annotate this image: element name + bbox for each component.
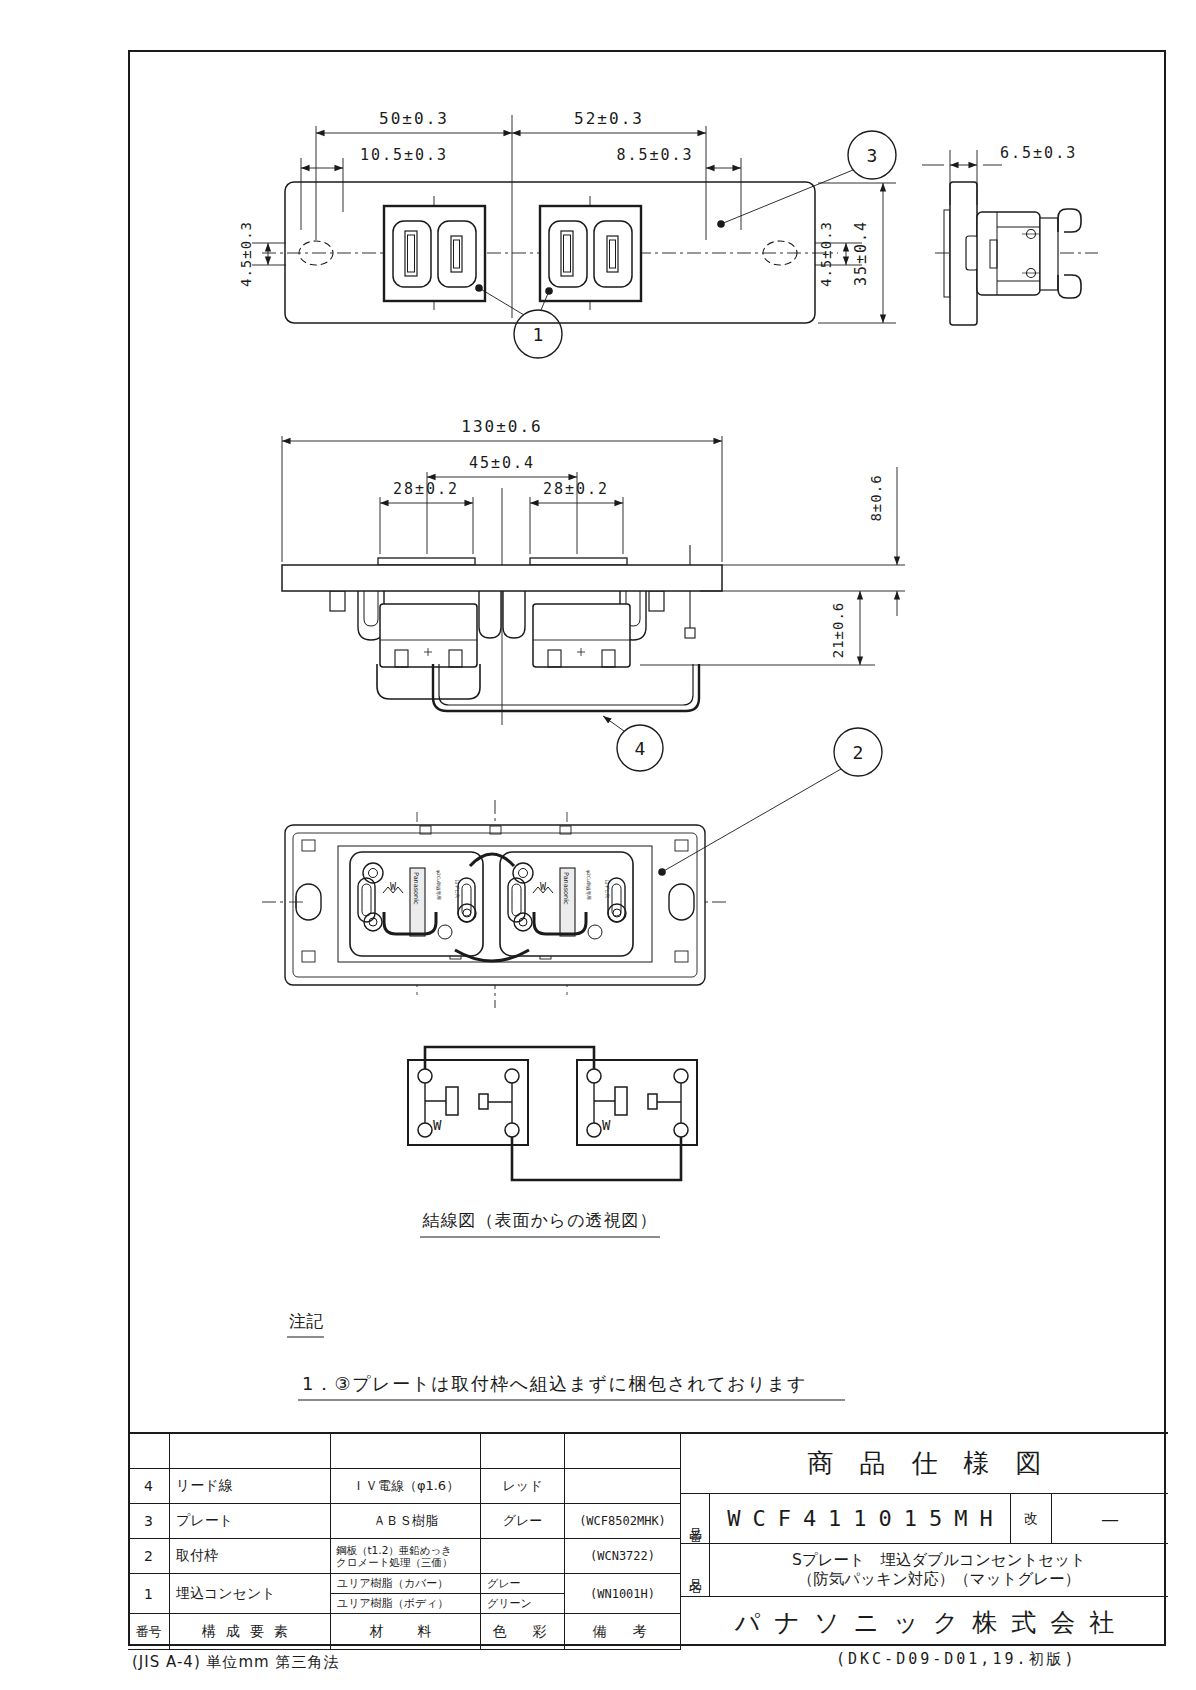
dim-10-5: 10.5±0.3 [360, 146, 448, 164]
wiring-diagram [408, 1047, 697, 1180]
bom-row2-component: 取付枠 [170, 1539, 331, 1574]
callout-2-label: 2 [853, 742, 864, 763]
bom-row1-no: 1 [128, 1574, 170, 1614]
bom-row1-color: グレー グリーン [481, 1574, 565, 1614]
bom-row2-no: 2 [128, 1539, 170, 1574]
bom-row4-color: レッド [481, 1469, 565, 1504]
bom-row3-remarks: (WCF8502MHK) [565, 1504, 681, 1539]
brand-text-left: Panasonic [412, 872, 420, 905]
notes-heading: 注記 [289, 1311, 323, 1331]
footer-standard-note: (JIS A-4) 単位mm 第三角法 [132, 1653, 340, 1672]
bom-row1-remarks: (WN1001H) [565, 1574, 681, 1614]
dim-28-right: 28±0.2 [543, 480, 609, 498]
bom-header-remarks: 備 考 [565, 1614, 681, 1650]
bom-header-color: 色 彩 [481, 1614, 565, 1650]
bom-table: 4 リード線 ＩＶ電線（φ1.6） レッド 3 プレート ＡＢＳ樹脂 グレー (… [128, 1432, 681, 1648]
back-view [262, 800, 728, 1008]
bom-row2-material: 鋼板（t1.2）亜鉛めっき クロメート処理（三価） [331, 1539, 481, 1574]
sheet-title: 商品仕様図 [681, 1434, 1168, 1494]
bom-row2-remarks: (WCN3722) [565, 1539, 681, 1574]
wiring-w-label-right: W [602, 1117, 611, 1133]
wiring-caption: 結線図（表面からの透視図） [421, 1210, 657, 1230]
product-name-label: 品名 [681, 1544, 710, 1596]
callout-4 [603, 716, 663, 771]
bom-header-component: 構成要素 [170, 1614, 331, 1650]
bom-row2-color [481, 1539, 565, 1574]
micro-text-gauge-right: φ2Cu単線専用 [586, 870, 592, 900]
dim-28-left: 28±0.2 [393, 480, 459, 498]
bom-row4-component: リード線 [170, 1469, 331, 1504]
title-block: 商品仕様図 品番 WCF411015MH 改 — 品名 Sプレート 埋込ダブルコ… [681, 1432, 1168, 1648]
dim-21: 21±0.6 [830, 602, 846, 659]
brand-text-right: Panasonic [562, 872, 570, 905]
dim-8: 8±0.6 [868, 474, 884, 521]
dim-35: 35±0.4 [852, 220, 870, 286]
product-name-value: Sプレート 埋込ダブルコンセントセット （防気パッキン対応）（マットグレー） [710, 1544, 1168, 1596]
part-number-value: WCF411015MH [710, 1494, 1010, 1543]
footer-doc-code: (DKC-D09-D01,19.初版) [836, 1650, 1077, 1669]
bom-row4-no: 4 [128, 1469, 170, 1504]
bom-row3-component: プレート [170, 1504, 331, 1539]
bom-row4-material: ＩＶ電線（φ1.6） [331, 1469, 481, 1504]
w-mark-left: W [390, 881, 397, 892]
callout-1-label: 1 [533, 324, 544, 345]
callout-3-label: 3 [867, 145, 878, 166]
side-view [922, 150, 1098, 325]
bom-row3-no: 3 [128, 1504, 170, 1539]
dim-6-5: 6.5±0.3 [1000, 144, 1077, 162]
spec-drawing-page: 50±0.3 52±0.3 10.5±0.3 8.5±0.3 4.5±0.3 4… [0, 0, 1196, 1690]
bom-header-no: 番号 [128, 1614, 170, 1650]
bom-row1-component: 埋込コンセント [170, 1574, 331, 1614]
bom-row3-color: グレー [481, 1504, 565, 1539]
callout-4-label: 4 [635, 738, 646, 759]
dim-50: 50±0.3 [379, 109, 449, 128]
dim-130: 130±0.6 [461, 417, 542, 436]
company-name: パナソニック株式会社 [681, 1597, 1168, 1648]
note-item-1: 1．③プレートは取付枠へ組込まずに梱包されております [302, 1373, 807, 1394]
revision-label: 改 [1010, 1494, 1052, 1543]
wiring-w-label-left: W [433, 1117, 442, 1133]
part-number-label: 品番 [681, 1494, 710, 1543]
micro-text-gauge-left: φ2Cu単線専用 [436, 870, 442, 900]
dim-8-5: 8.5±0.3 [616, 146, 693, 164]
dim-4-5-left: 4.5±0.3 [238, 221, 254, 287]
dim-4-5-right: 4.5±0.3 [818, 221, 834, 287]
w-mark-right: W [540, 881, 547, 892]
bom-row4-remarks [565, 1469, 681, 1504]
revision-value: — [1052, 1494, 1168, 1543]
bom-empty-cell [128, 1434, 170, 1469]
bom-header-material: 材 料 [331, 1614, 481, 1650]
bom-row3-material: ＡＢＳ樹脂 [331, 1504, 481, 1539]
top-view [252, 115, 896, 323]
product-name-row: 品名 Sプレート 埋込ダブルコンセントセット （防気パッキン対応）（マットグレー… [681, 1544, 1168, 1597]
dim-45: 45±0.4 [469, 454, 535, 472]
bom-row1-material: ユリア樹脂（カバー） ユリア樹脂（ボディ） [331, 1574, 481, 1614]
dim-52: 52±0.3 [574, 109, 644, 128]
part-number-row: 品番 WCF411015MH 改 — [681, 1494, 1168, 1544]
